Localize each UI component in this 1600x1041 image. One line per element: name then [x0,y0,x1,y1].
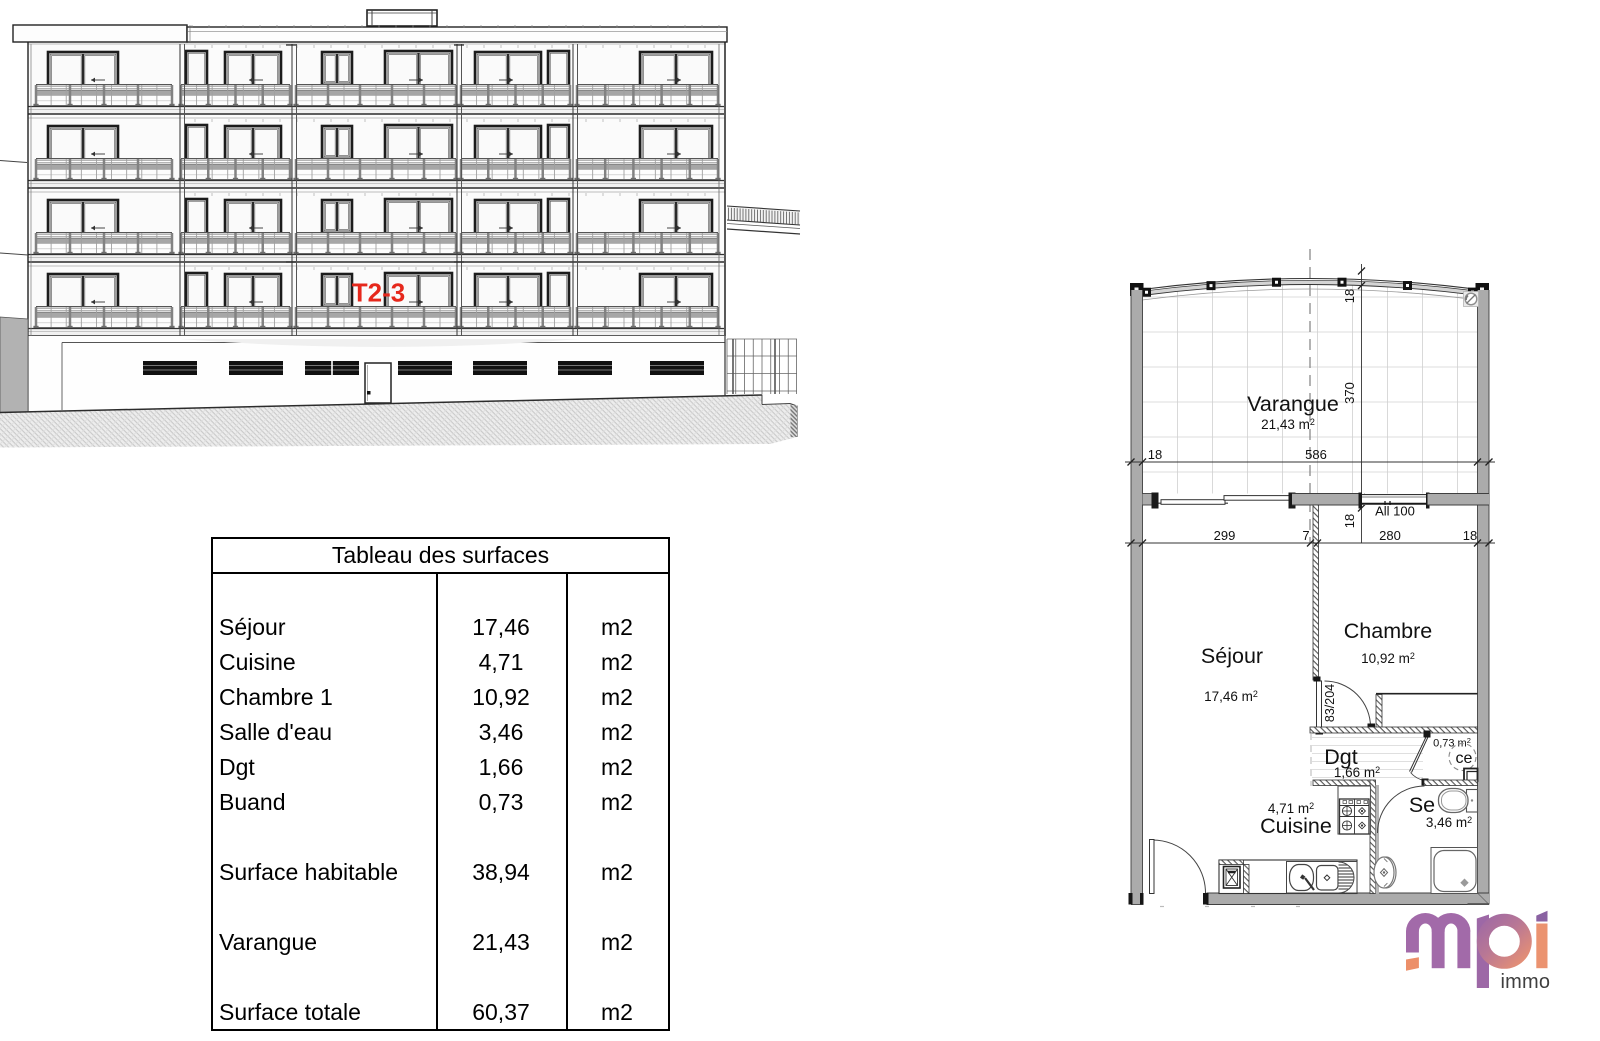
svg-text:280: 280 [1379,528,1401,543]
svg-text:Varangue: Varangue [1247,392,1339,416]
svg-text:1,66 m2: 1,66 m2 [1334,765,1380,780]
svg-text:All 100: All 100 [1375,504,1415,519]
svg-text:Séjour: Séjour [1201,644,1263,668]
svg-text:10,92 m2: 10,92 m2 [1361,651,1415,666]
svg-text:Chambre: Chambre [1344,619,1432,643]
svg-text:T2-3: T2-3 [352,278,405,308]
svg-text:83/204: 83/204 [1323,684,1337,722]
svg-text:17,46 m2: 17,46 m2 [1204,689,1258,704]
svg-text:299: 299 [1214,528,1236,543]
svg-text:7: 7 [1302,528,1309,543]
svg-text:ce: ce [1456,750,1473,767]
svg-text:370: 370 [1342,382,1357,404]
svg-text:21,43 m2: 21,43 m2 [1261,417,1315,432]
svg-text:0,73 m2: 0,73 m2 [1433,736,1471,750]
svg-text:18: 18 [1463,528,1477,543]
svg-text:immo: immo [1501,971,1551,993]
svg-text:Se: Se [1409,793,1435,817]
svg-text:18: 18 [1342,514,1357,528]
svg-text:18: 18 [1148,447,1162,462]
svg-text:3,46 m2: 3,46 m2 [1426,815,1472,830]
svg-text:Cuisine: Cuisine [1260,814,1332,838]
svg-text:586: 586 [1305,447,1327,462]
svg-text:18: 18 [1342,289,1357,303]
